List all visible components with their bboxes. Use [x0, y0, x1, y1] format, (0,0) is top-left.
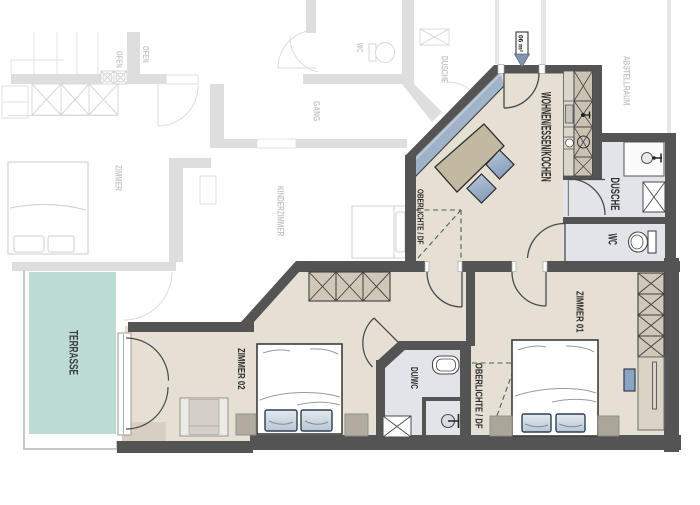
svg-text:OBERLICHTE / DF: OBERLICHTE / DF — [473, 363, 484, 429]
svg-text:TERRASSE: TERRASSE — [66, 330, 79, 375]
svg-text:WC: WC — [355, 43, 363, 52]
svg-text:06 m²: 06 m² — [517, 35, 524, 53]
svg-text:DU/WC: DU/WC — [409, 367, 421, 389]
svg-text:WOHNEN/ESSEN/KOCHEN: WOHNEN/ESSEN/KOCHEN — [538, 92, 553, 182]
svg-text:ZIMMER 01: ZIMMER 01 — [574, 291, 585, 333]
svg-text:DUSCHE: DUSCHE — [607, 178, 620, 211]
svg-text:WC: WC — [605, 234, 619, 245]
svg-text:ABSTELLRAUM: ABSTELLRAUM — [621, 56, 631, 105]
svg-text:OBERLICHTE / DF: OBERLICHTE / DF — [415, 189, 425, 245]
svg-text:KINDERZIMMER: KINDERZIMMER — [275, 186, 285, 237]
svg-text:DUSCHE: DUSCHE — [439, 56, 449, 83]
svg-text:OFEN: OFEN — [114, 51, 122, 68]
svg-text:ZIMMER: ZIMMER — [113, 165, 123, 191]
svg-text:OFEN: OFEN — [141, 46, 149, 63]
svg-text:ZIMMER 02: ZIMMER 02 — [236, 348, 247, 390]
svg-text:GANG: GANG — [311, 101, 321, 121]
